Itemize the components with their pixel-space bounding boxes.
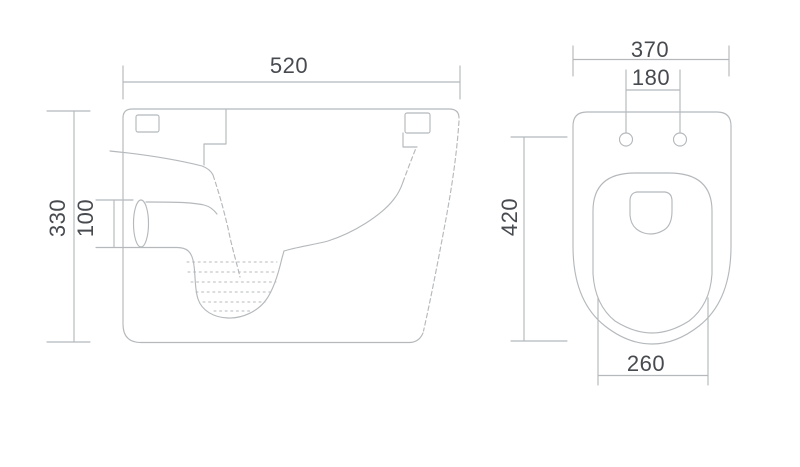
dimension-side-width: 520 bbox=[123, 53, 460, 99]
bowl-back-curve-hidden bbox=[403, 148, 416, 182]
dimension-bowl-width: 260 bbox=[598, 298, 708, 385]
rim-curve bbox=[110, 151, 213, 175]
technical-drawing-canvas: 520 330 100 370 bbox=[0, 0, 800, 467]
dim-label-hole-spacing: 180 bbox=[632, 65, 670, 90]
bowl-back-curve bbox=[284, 182, 403, 251]
dimension-plan-depth: 420 bbox=[497, 137, 567, 341]
side-fixing-hole-right bbox=[405, 113, 430, 133]
toilet-dimensions-drawing: 520 330 100 370 bbox=[0, 0, 800, 467]
dimension-outlet-diameter: 100 bbox=[73, 199, 114, 248]
dim-label-bowl-width: 260 bbox=[627, 351, 665, 376]
side-fixing-hole-left bbox=[136, 115, 159, 132]
trap-bowl-outline bbox=[96, 248, 284, 319]
plan-body-outline bbox=[573, 112, 731, 344]
flush-opening bbox=[630, 192, 672, 234]
outlet-pipe-opening bbox=[134, 200, 149, 247]
rim-step-right bbox=[403, 133, 417, 147]
seat-rim-outline bbox=[593, 173, 712, 333]
side-body-outline bbox=[123, 109, 459, 343]
dim-label-outlet: 100 bbox=[73, 199, 98, 237]
top-view-drawing: 370 180 420 260 bbox=[497, 37, 731, 385]
outlet-pipe-inner-top bbox=[146, 202, 217, 214]
side-view-drawing: 520 330 100 bbox=[45, 53, 460, 343]
dim-label-plan-depth: 420 bbox=[497, 198, 522, 236]
rim-step-left bbox=[204, 109, 226, 165]
dimension-hole-spacing: 180 bbox=[626, 65, 680, 133]
plan-fixing-hole-right bbox=[674, 133, 687, 146]
dim-label-side-height: 330 bbox=[45, 199, 70, 237]
dim-label-plan-width: 370 bbox=[631, 37, 669, 62]
plan-fixing-hole-left bbox=[620, 133, 633, 146]
side-hidden-back-edge bbox=[424, 121, 460, 331]
dim-label-side-width: 520 bbox=[270, 53, 308, 78]
